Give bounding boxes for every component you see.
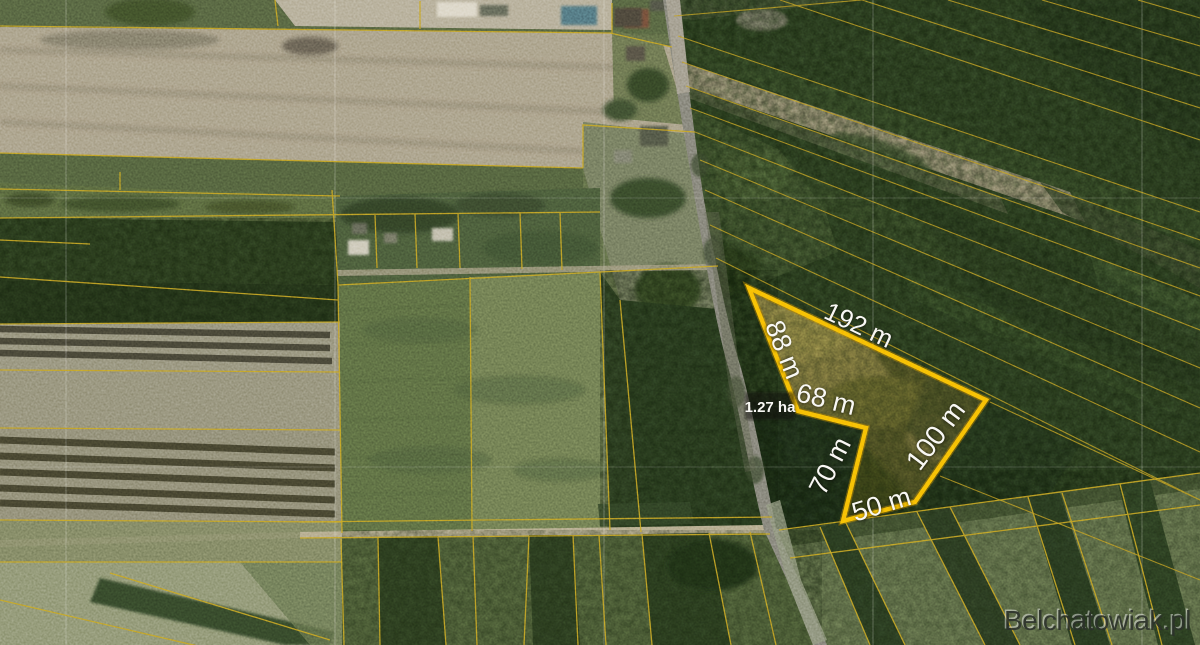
svg-text:Belchatowiak.pl: Belchatowiak.pl [1004,605,1191,636]
